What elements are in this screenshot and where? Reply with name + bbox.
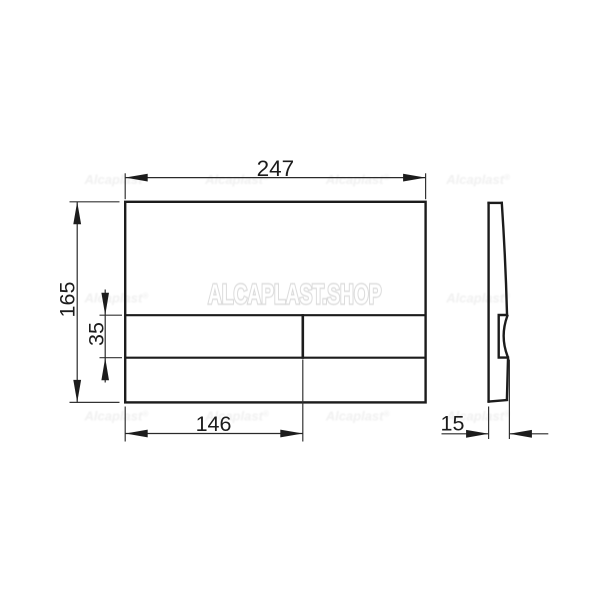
- svg-text:ALCAPLAST.SHOP: ALCAPLAST.SHOP: [208, 279, 382, 311]
- svg-text:165: 165: [55, 282, 79, 318]
- svg-text:Alcaplast®: Alcaplast®: [84, 291, 149, 306]
- svg-text:35: 35: [85, 322, 109, 346]
- svg-text:Alcaplast®: Alcaplast®: [445, 172, 510, 187]
- svg-text:Alcaplast®: Alcaplast®: [325, 408, 390, 423]
- svg-text:247: 247: [257, 156, 295, 181]
- svg-text:Alcaplast®: Alcaplast®: [325, 172, 390, 187]
- svg-text:146: 146: [196, 412, 232, 436]
- svg-text:Alcaplast®: Alcaplast®: [84, 408, 149, 423]
- svg-text:15: 15: [441, 412, 465, 436]
- svg-text:Alcaplast®: Alcaplast®: [445, 291, 510, 306]
